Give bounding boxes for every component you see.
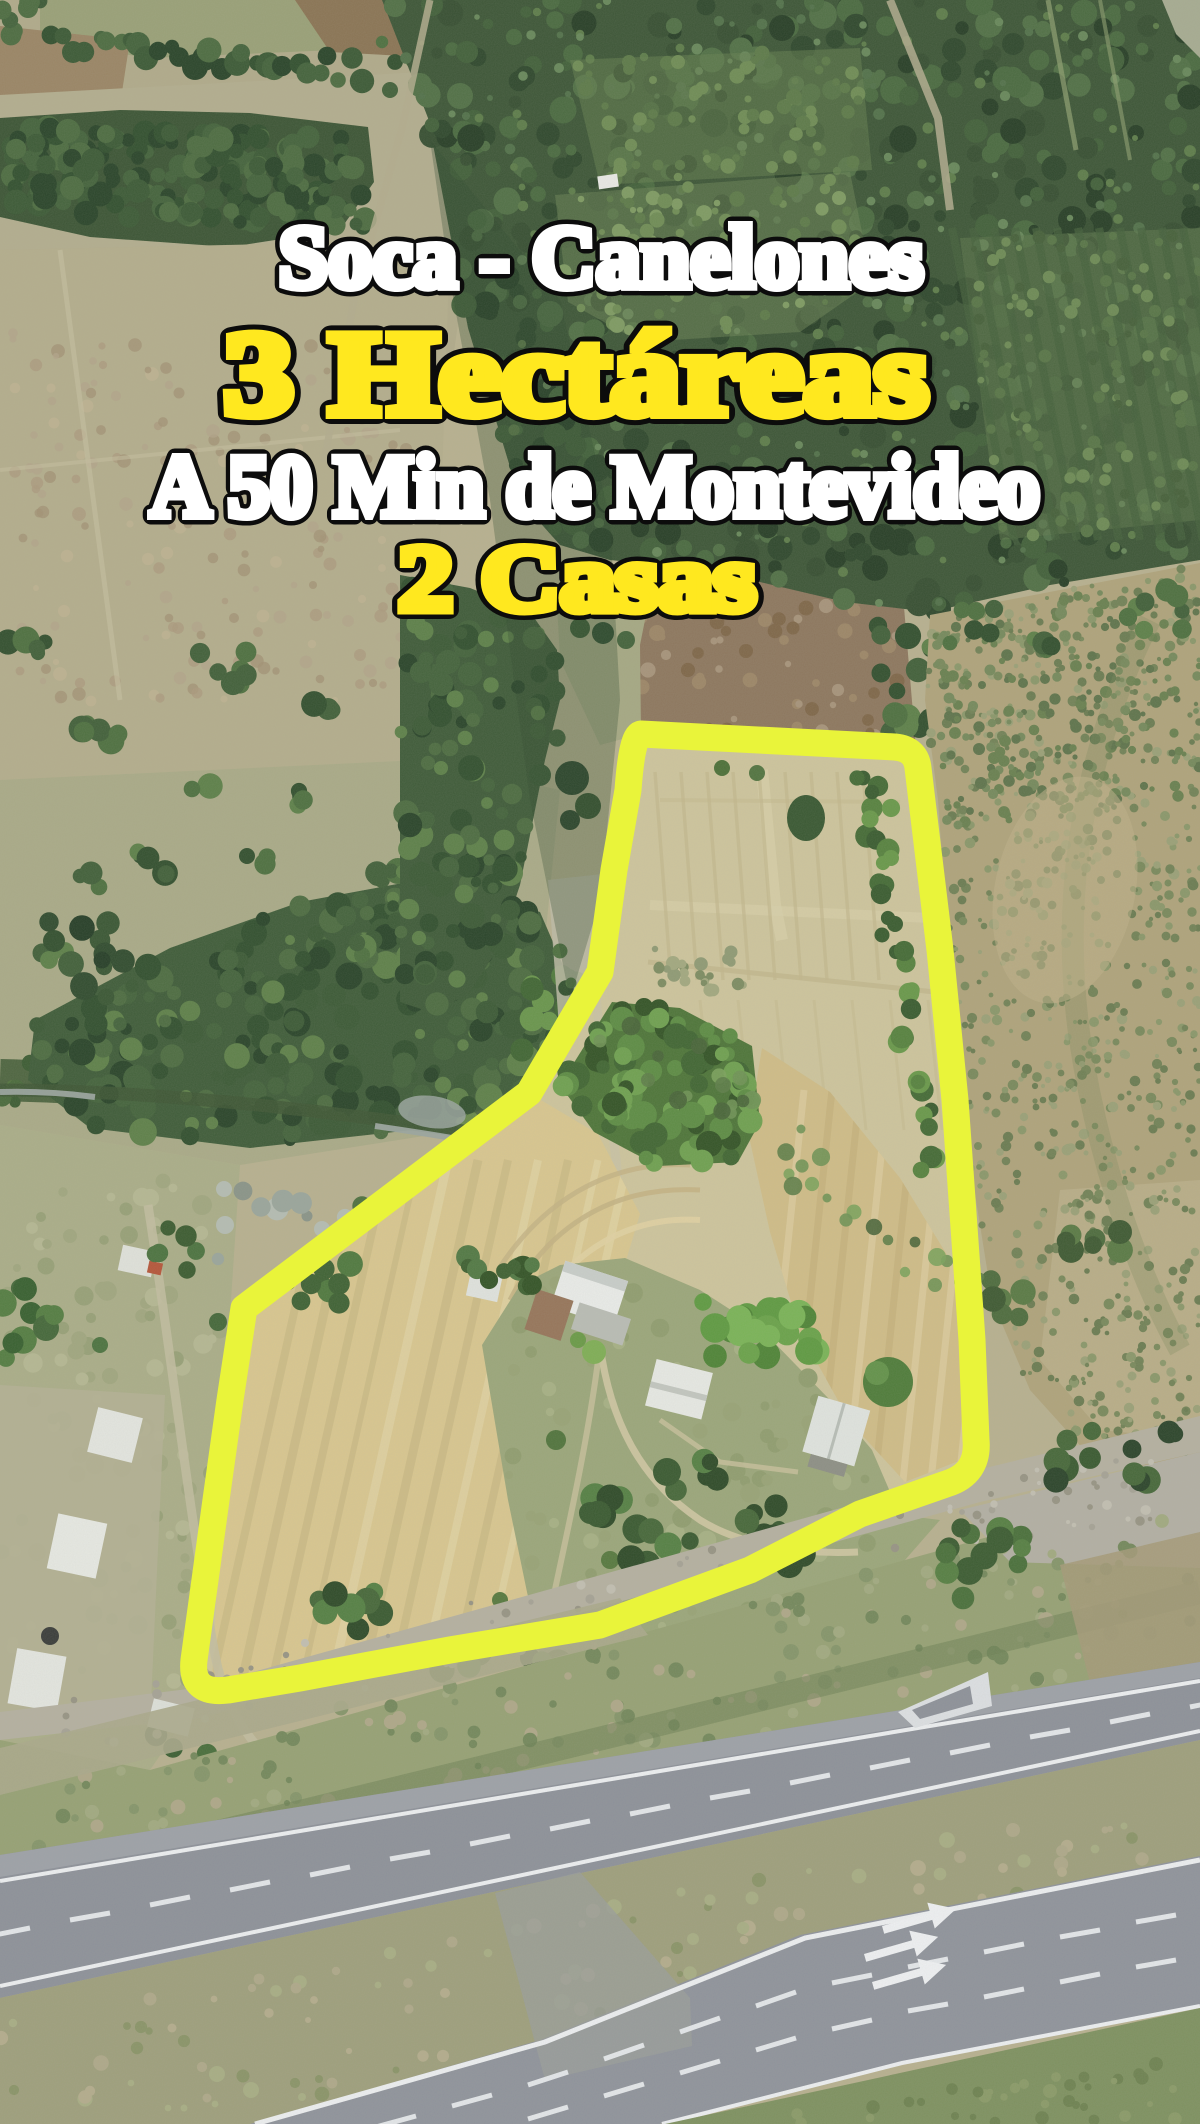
svg-text:A 50 Min de Montevideo: A 50 Min de Montevideo	[150, 438, 1040, 536]
svg-text:Soca - Canelones: Soca - Canelones	[279, 209, 924, 307]
svg-text:2 Casas: 2 Casas	[398, 527, 756, 631]
svg-text:3 Hectáreas: 3 Hectáreas	[224, 307, 929, 440]
